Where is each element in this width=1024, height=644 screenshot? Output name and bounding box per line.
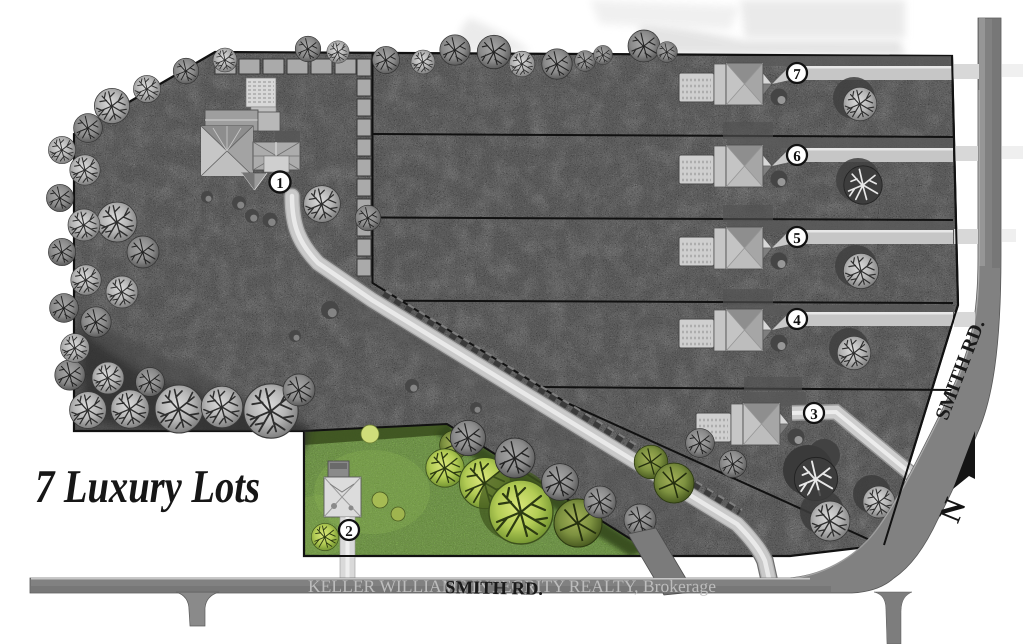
svg-text:7: 7	[793, 67, 801, 83]
svg-text:6: 6	[793, 149, 801, 165]
svg-text:2: 2	[345, 524, 353, 540]
svg-text:7 Luxury Lots: 7 Luxury Lots	[35, 461, 260, 513]
svg-text:5: 5	[793, 231, 801, 247]
svg-text:4: 4	[793, 313, 801, 329]
svg-text:SMITH RD.: SMITH RD.	[445, 578, 543, 600]
svg-text:1: 1	[276, 176, 284, 192]
svg-text:3: 3	[810, 407, 818, 423]
